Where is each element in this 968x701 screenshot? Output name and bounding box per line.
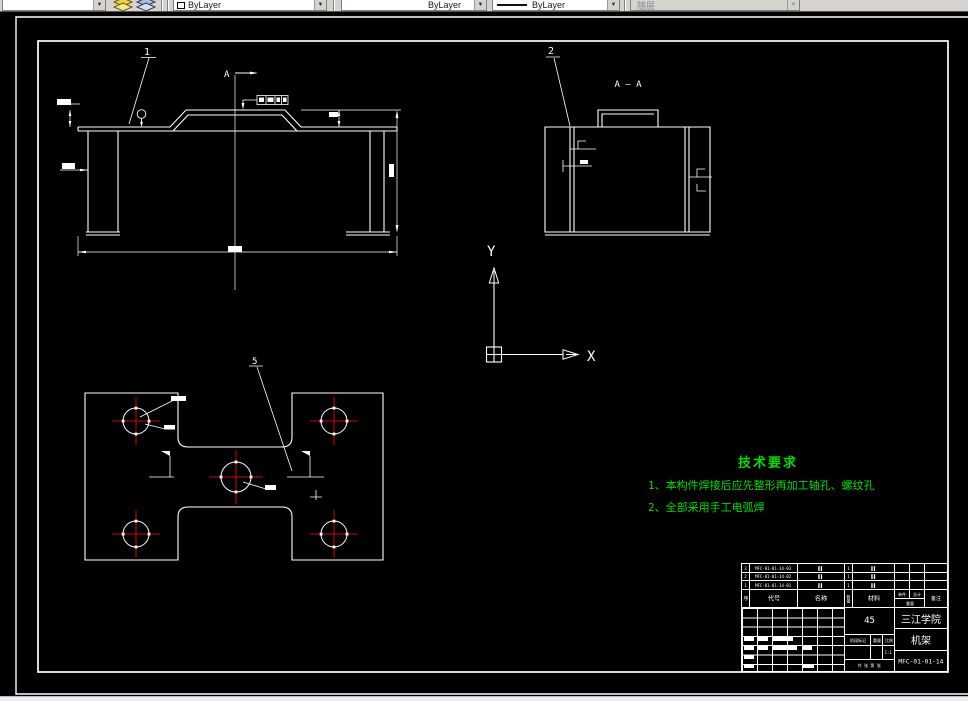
object-properties-toolbar: ▼ ByLayer ▼ ByLayer ▼ ByLayer ▼ 随层 ▼ [0, 0, 968, 12]
plan-view: 5 [85, 357, 383, 560]
plotstyle-combo[interactable]: 随层 ▼ [630, 0, 800, 11]
chevron-down-icon[interactable]: ▼ [314, 0, 326, 10]
color-combo[interactable]: ByLayer ▼ [173, 0, 327, 11]
balloon-label-1: 1 [144, 47, 150, 58]
linetype-combo[interactable]: ByLayer ▼ [341, 0, 487, 11]
section-arrow-label: A [224, 70, 230, 80]
balloon-leader-5 [249, 366, 292, 471]
balloon-label-5: 5 [252, 357, 257, 367]
dim-text-blob [580, 160, 588, 164]
toolbar-separator [167, 0, 169, 12]
signature-grid [741, 607, 845, 672]
bom-header-code: 代号 [749, 589, 798, 608]
bom-header-name: 名称 [797, 589, 845, 608]
chevron-down-icon: ▼ [787, 0, 799, 10]
lineweight-combo[interactable]: ByLayer ▼ [492, 0, 620, 11]
horizontal-scrollbar[interactable] [0, 696, 968, 701]
balloon-leader-1 [129, 58, 156, 125]
feature-control-frame [242, 96, 288, 110]
bom-header-material: 材料 [852, 589, 895, 608]
front-view-outline [78, 110, 397, 235]
ucs-origin-cross [487, 347, 502, 362]
tech-req-title: 技术要求 [630, 452, 906, 471]
lineweight-sample-icon [497, 4, 527, 6]
color-swatch [177, 2, 185, 9]
section-cut-arrow [250, 72, 258, 75]
section-view-outline [545, 110, 710, 235]
section-view-title: A — A [614, 80, 642, 90]
ucs-x-label: X [587, 349, 596, 365]
drawing-number: MFC-01-01-14 [894, 650, 948, 672]
dim-text-blobs [57, 99, 394, 252]
tech-req-item-2: 2、全部采用手工电弧焊 [630, 499, 906, 515]
toolbar-separator [624, 0, 626, 12]
layers-icon[interactable] [136, 0, 156, 11]
toolbar-separator [333, 0, 335, 12]
company-name: 三江学院 [894, 607, 948, 629]
linetype-combo-value: ByLayer [428, 0, 461, 10]
section-weld-symbols [563, 141, 712, 191]
material-grade: 45 [844, 607, 895, 635]
chevron-down-icon[interactable]: ▼ [607, 0, 619, 10]
front-view: A 1 [57, 47, 401, 290]
tech-req-item-1: 1、本构件焊接后应先整形再加工轴孔、螺纹孔 [630, 477, 906, 493]
lineweight-combo-value: ByLayer [532, 0, 565, 10]
hole-quadrant-dots [122, 407, 349, 549]
bom-header-remark: 备注 [924, 589, 948, 608]
toolbar-separator [161, 0, 163, 12]
balloon-leader-2 [546, 57, 570, 126]
balloon-label-2: 2 [548, 46, 554, 57]
ucs-icon: Y X [487, 244, 597, 365]
weld-symbol [137, 110, 146, 127]
stage-value [844, 645, 871, 660]
color-combo-value: ByLayer [188, 0, 221, 10]
ucs-axes [494, 283, 563, 355]
sheet-info: 共 张 第 张 [844, 659, 895, 672]
part-name: 机架 [894, 628, 948, 651]
plotstyle-combo-value: 随层 [637, 0, 655, 12]
section-view: A — A 2 [545, 46, 712, 235]
chevron-down-icon[interactable]: ▼ [93, 0, 105, 10]
layer-combo[interactable]: ▼ [2, 0, 106, 11]
technical-requirements: 技术要求 1、本构件焊接后应先整形再加工轴孔、螺纹孔 2、全部采用手工电弧焊 [630, 452, 906, 515]
title-block: 3 MFC-01-01-14-03 ▌▌ 1 ▌▌ 2 MFC-01-01-14… [741, 563, 948, 672]
layer-manager-icon[interactable] [113, 0, 133, 11]
hole-leaders [140, 401, 266, 489]
chevron-down-icon[interactable]: ▼ [474, 0, 486, 10]
ucs-y-label: Y [487, 244, 496, 260]
